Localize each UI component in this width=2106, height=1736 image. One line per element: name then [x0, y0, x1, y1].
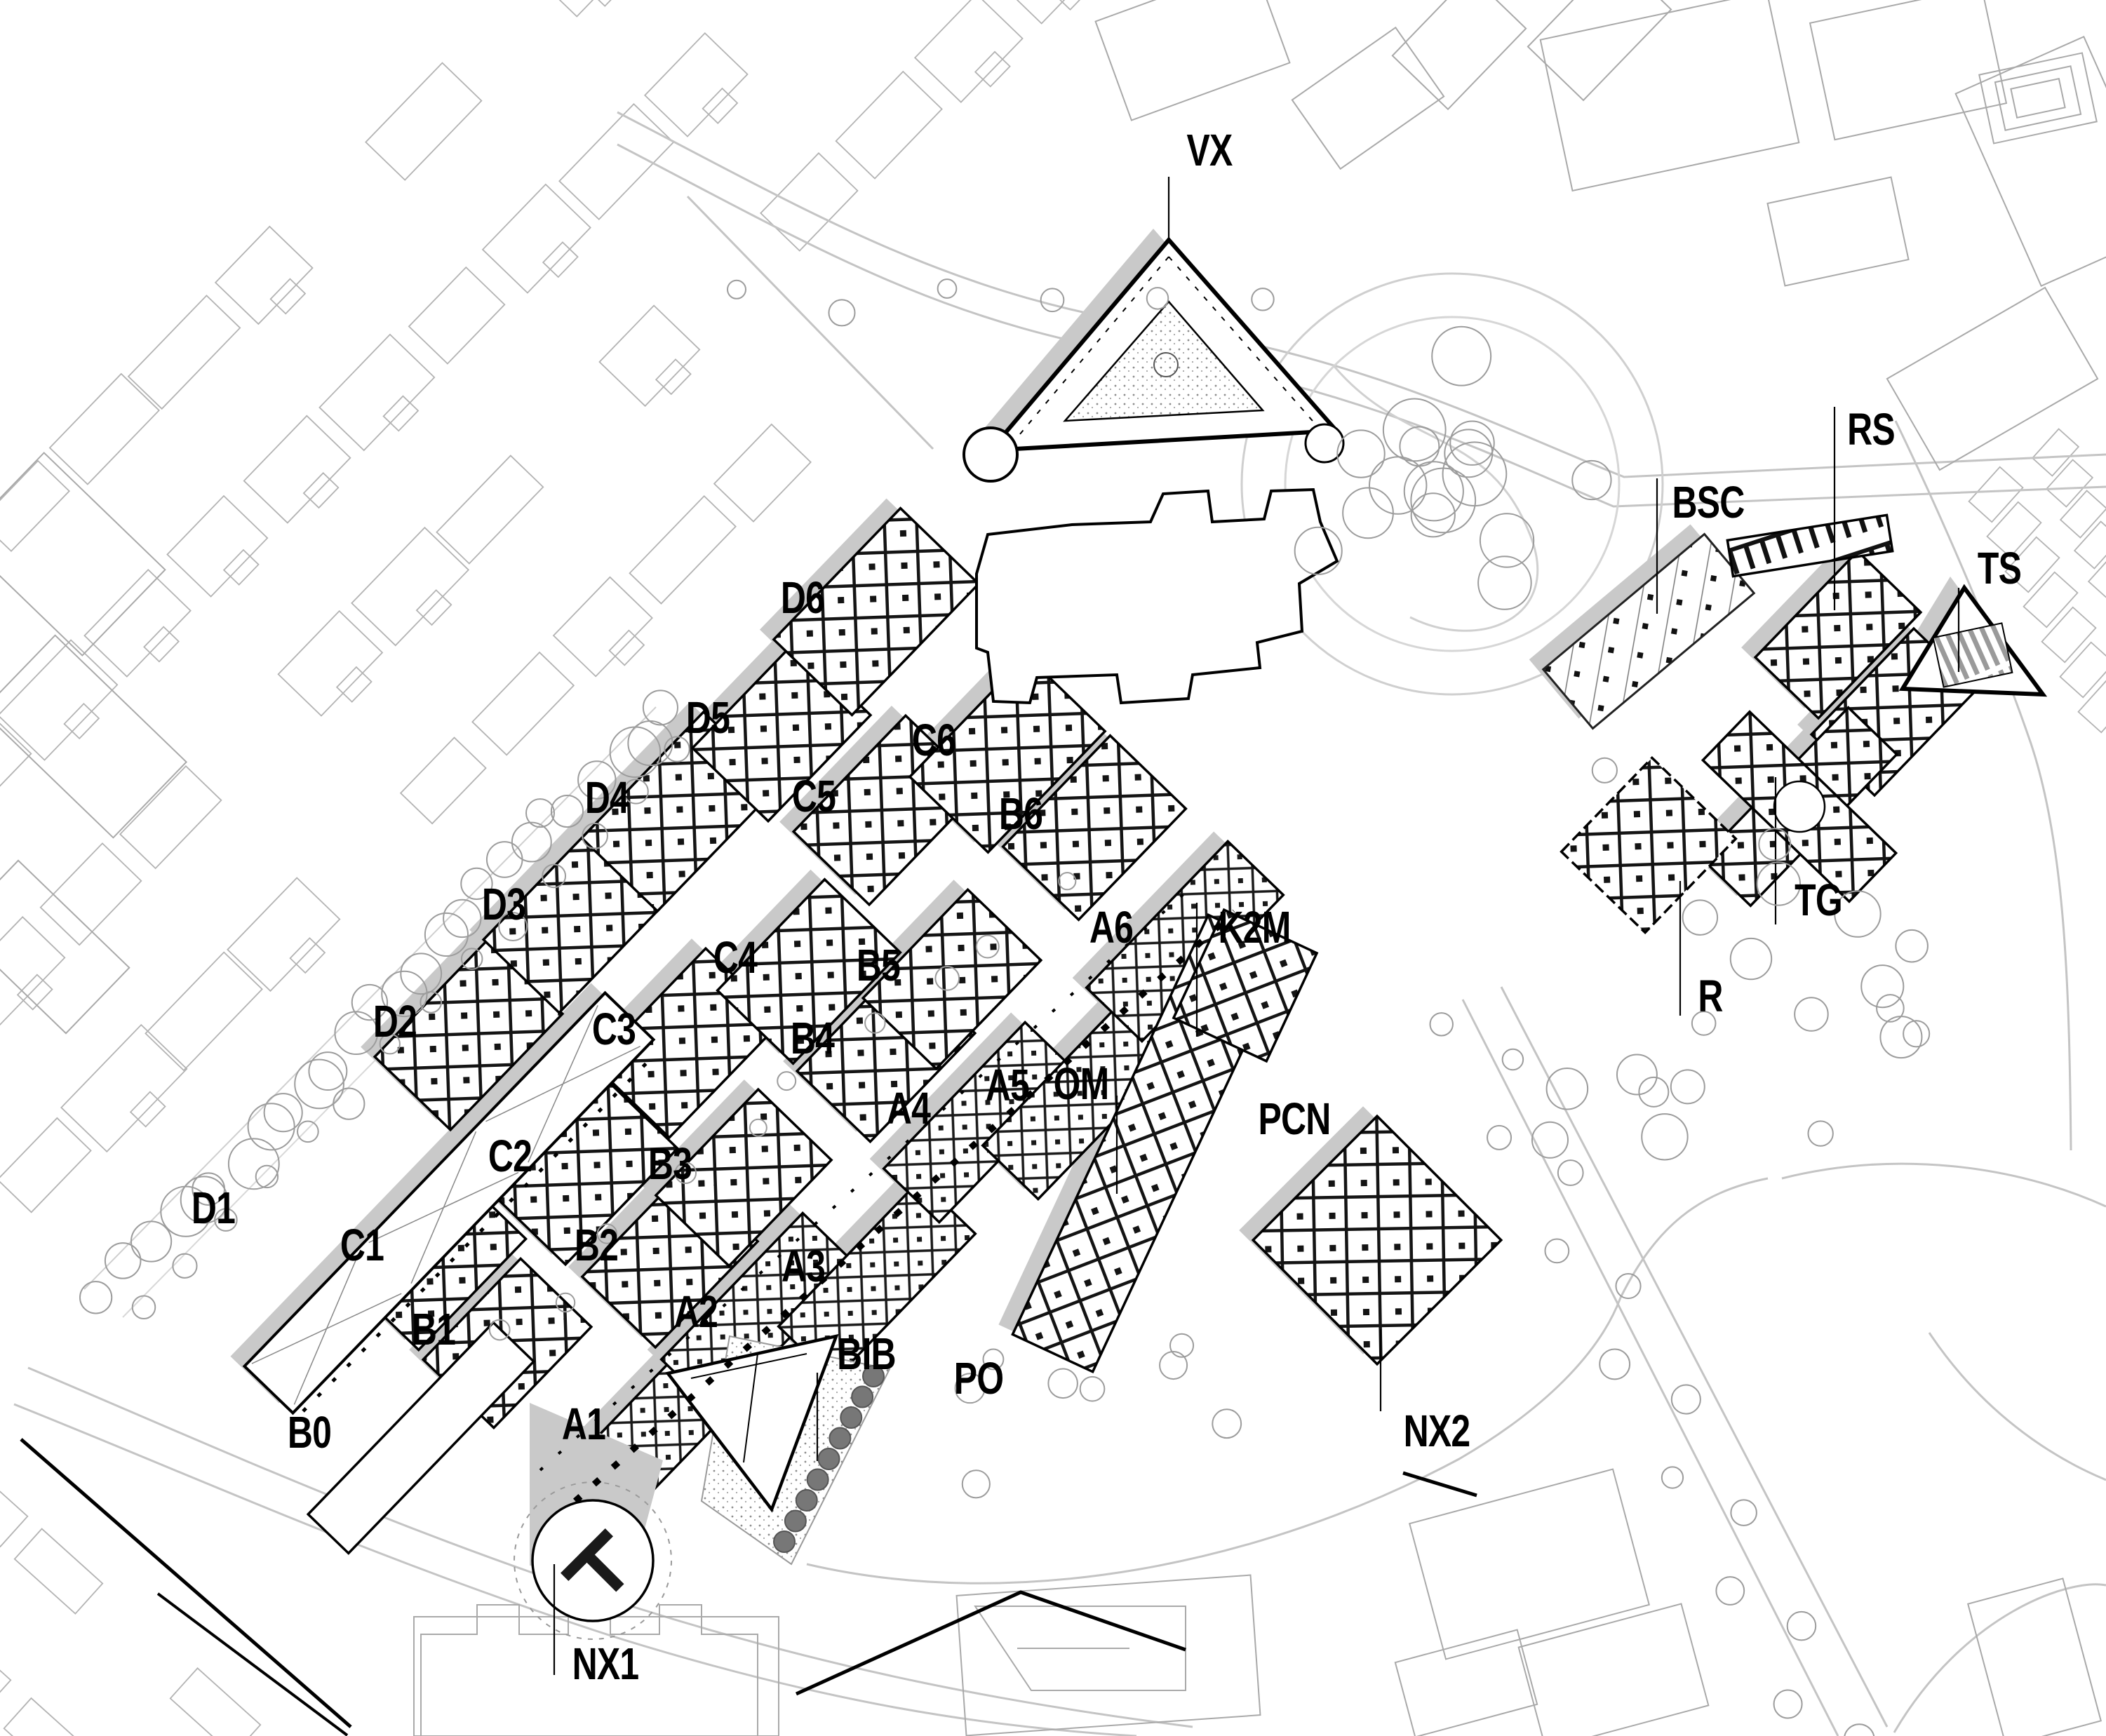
r-building — [1562, 758, 1736, 932]
bib-building — [668, 1336, 890, 1564]
site-plan-drawing — [0, 0, 2106, 1736]
vx-building — [964, 240, 1343, 481]
site-plan-canvas: VXRSBSCTSTGRD6D5C6B6C5D4D3C4B5A6K2MB4D2A… — [0, 0, 2106, 1736]
pcn-building — [1253, 1116, 1501, 1364]
existing-public-building — [977, 490, 1337, 703]
